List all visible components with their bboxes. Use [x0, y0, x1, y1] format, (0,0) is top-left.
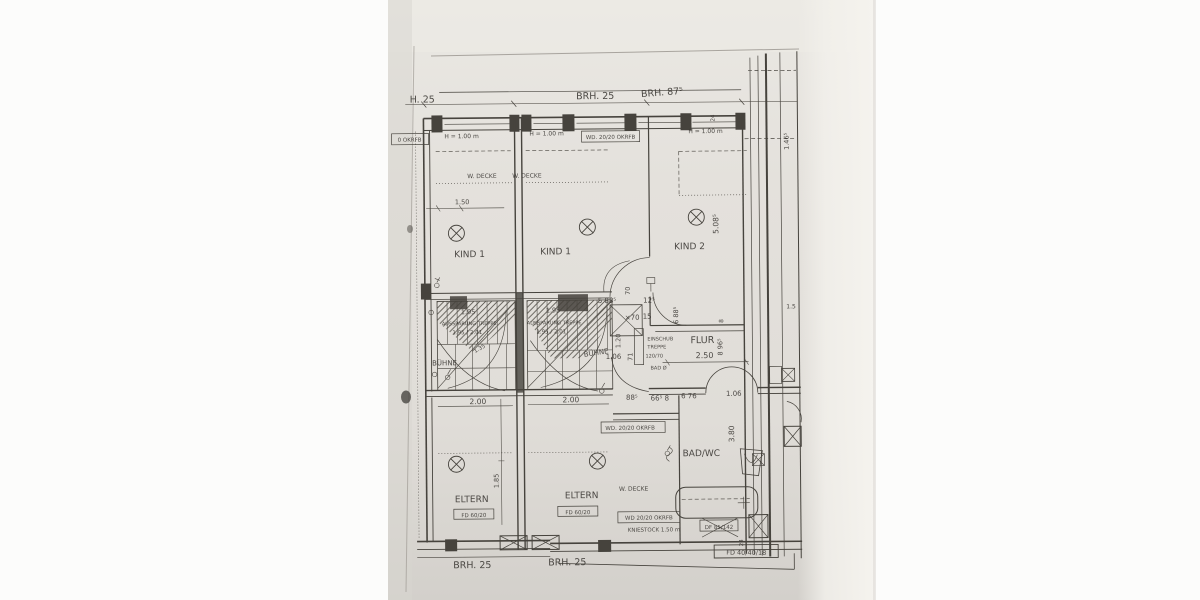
hole-punch-mark: [401, 391, 411, 404]
label-kniestock: KNIESTOCK 1.50 m: [628, 527, 681, 533]
room-label-flur: FLUR: [690, 335, 714, 346]
label-fd4040: FD 40/40/18: [726, 549, 766, 557]
room-label-bad-wc: BAD/WC: [683, 449, 721, 459]
room-label-kind1-mid: KIND 1: [540, 247, 571, 257]
label-wd2020-mid: WD. 20/20 OKRFB: [605, 426, 655, 432]
dim-380: 3.80: [727, 425, 736, 442]
label-df85: DF 85/142: [705, 525, 734, 531]
label-einschub-1: EINSCHUB: [647, 336, 674, 342]
dim-688: 6 88⁵: [672, 306, 680, 324]
room-label-buehne-left: BÜHNE: [432, 358, 457, 367]
dim-106-hall: 1.06: [606, 353, 622, 361]
floor-plan-scan: H. 25 BRH. 25 BRH. 87⁵ 0 OKRFB H = 1.00 …: [0, 0, 1200, 600]
stair-hatch-dim-a: 1.95: [461, 308, 476, 316]
label-fd6020-a: FD 60/20: [461, 513, 487, 519]
label-okrfb-left: 0 OKRFB: [398, 138, 422, 144]
dim-150: 1.50: [455, 198, 470, 206]
label-bad-door: BAD Ø: [650, 364, 666, 371]
dim-200-a: 2.00: [469, 397, 486, 406]
dim-185: 1.85: [493, 474, 501, 489]
dim-15: 15: [643, 313, 652, 321]
dim-71: 71: [626, 353, 634, 361]
dim-70: 70: [624, 287, 632, 295]
dim-24-bottom: 24: [739, 539, 745, 547]
room-label-kind2: KIND 2: [674, 242, 705, 252]
stair-hatch-dim-b: 1.95: [546, 306, 561, 314]
dim-brh25-top: BRH. 25: [576, 91, 614, 102]
label-wdecke-b: W. DECKE: [512, 173, 542, 180]
hole-punch-mark: [407, 225, 413, 233]
dim-106-bad: 1.06: [726, 390, 742, 398]
label-h100-c: H = 1.00 m: [688, 128, 723, 135]
label-wd2020-bottom: WD 20/20 OKRFB: [625, 515, 673, 521]
label-einschub-2: TREPPE: [646, 344, 666, 350]
label-h100-a: H = 1.00 m: [444, 133, 479, 140]
label-wdecke-a: W. DECKE: [467, 173, 497, 180]
dim-8: 8: [718, 319, 725, 323]
label-fd6020-b: FD 60/20: [565, 510, 591, 516]
dim-120: 1.20: [614, 334, 622, 349]
dim-200-b: 2.00: [562, 395, 579, 404]
dim-24-top: 24: [710, 114, 716, 122]
dim-15-right: 1.5: [786, 303, 796, 310]
dim-125: 12⁵: [643, 297, 655, 305]
stair-aussparung-b: AUSSPARUNG TREPPE: [527, 320, 582, 326]
room-label-eltern-mid: ELTERN: [565, 491, 599, 501]
room-label-kind1-left: KIND 1: [454, 250, 485, 260]
dim-665: 66⁵ 8: [651, 394, 669, 402]
dim-885: 88⁵: [626, 394, 638, 402]
dim-brh25-bottom-b: BRH. 25: [548, 557, 586, 568]
dim-brh25-bottom-a: BRH. 25: [453, 560, 491, 571]
dim-508: 5.08⁵: [711, 214, 720, 234]
dim-146: 1.46⁵: [783, 132, 791, 150]
dim-588: 5 88⁵: [598, 297, 617, 305]
stair-ratio-a: 1.95 / 2.01: [452, 330, 482, 336]
dim-676: 6 76: [681, 392, 697, 400]
label-einschub-3: 120/70: [645, 353, 663, 359]
dim-965: 8 96⁵: [716, 338, 724, 356]
dim-h25: H. 25: [410, 94, 435, 105]
label-wdecke-c: W. DECKE: [619, 486, 649, 493]
screenshot-stage: 1.DG:: [0, 0, 1200, 600]
dim-x70: ×70: [625, 314, 640, 322]
stair-aussparung-a: AUSSPARUNG TREPPE: [442, 321, 497, 327]
room-label-eltern-left: ELTERN: [455, 495, 489, 505]
stair-ratio-b: 1.95 / 2.01: [536, 329, 566, 335]
label-wd2020-top: WD. 20/20 OKRFB: [586, 135, 636, 141]
dim-250: 2.50: [696, 351, 714, 360]
label-h100-b: H = 1.00 m: [529, 130, 564, 137]
